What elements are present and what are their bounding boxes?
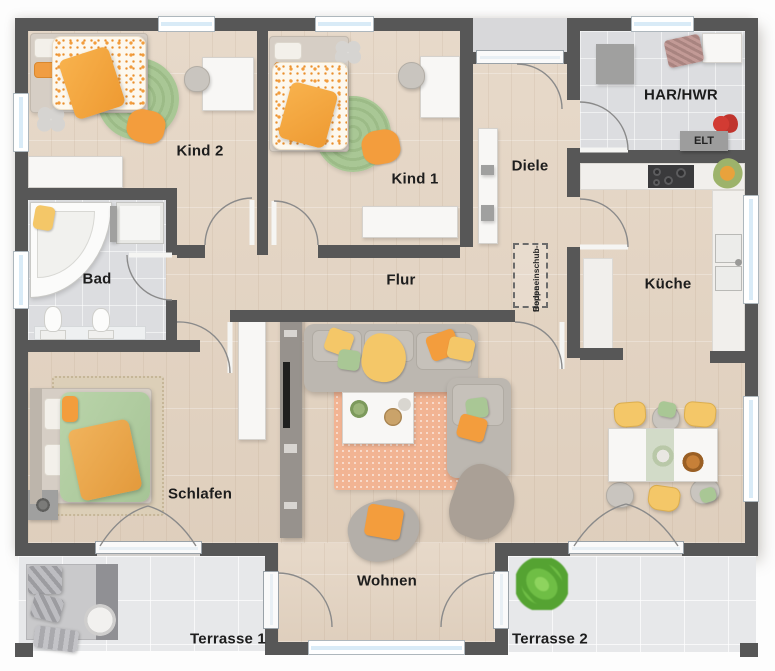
- shelf-item: [284, 444, 297, 453]
- room-label-diele: Diele: [512, 158, 549, 175]
- wall: [567, 247, 580, 358]
- sink: [715, 266, 742, 291]
- bidet: [92, 308, 110, 332]
- room-label-schlafen: Schlafen: [168, 486, 232, 503]
- wall: [508, 543, 570, 556]
- boiler: [596, 44, 634, 84]
- wall: [745, 18, 758, 197]
- desk: [420, 56, 460, 118]
- hall-cabinet: [478, 128, 498, 244]
- window: [315, 16, 374, 32]
- wardrobe: [28, 156, 123, 188]
- tray: [384, 408, 402, 426]
- burner: [676, 168, 686, 178]
- wall: [265, 543, 278, 573]
- wall: [567, 18, 580, 100]
- wardrobe: [238, 318, 266, 440]
- room-label-har-hwr: HAR/HWR: [644, 87, 718, 104]
- entry-door: [476, 50, 564, 64]
- wall: [745, 302, 758, 398]
- wall: [15, 643, 33, 657]
- pillow: [274, 42, 302, 60]
- flower-rug: [334, 40, 362, 64]
- wall: [710, 351, 745, 363]
- wall: [15, 188, 177, 200]
- attic-ladder-box: Bodeneinschub- treppe: [513, 243, 548, 308]
- toilet: [44, 306, 62, 332]
- pillow: [28, 566, 62, 594]
- entry-porch: [473, 18, 567, 52]
- french-door: [568, 541, 684, 554]
- dining-chair: [606, 482, 634, 508]
- wall: [166, 300, 177, 345]
- room-label-bad: Bad: [83, 271, 112, 288]
- wall: [460, 18, 473, 247]
- floor-plan: Bodeneinschub- treppe: [0, 0, 775, 671]
- wardrobe: [362, 206, 458, 238]
- wall: [257, 31, 268, 255]
- desk-chair: [398, 62, 425, 89]
- desk-chair: [184, 66, 210, 92]
- terrace-door: [493, 571, 509, 629]
- window: [308, 640, 465, 655]
- dining-chair: [613, 401, 647, 428]
- window: [13, 93, 29, 152]
- wall: [495, 627, 508, 655]
- wall: [230, 310, 515, 322]
- flowers: [650, 444, 676, 468]
- headboard: [30, 388, 42, 504]
- side-table: [84, 604, 116, 636]
- bowl: [682, 452, 704, 472]
- burner: [653, 168, 661, 176]
- elt-label: ELT: [680, 131, 728, 151]
- wall: [15, 543, 97, 556]
- wall: [567, 163, 580, 197]
- desk: [202, 57, 254, 111]
- wall: [495, 543, 508, 573]
- plant: [713, 158, 745, 192]
- wall: [318, 245, 460, 258]
- plant: [516, 558, 568, 610]
- towel: [32, 204, 56, 231]
- faucet: [735, 259, 742, 266]
- kitchen-counter: [583, 258, 613, 351]
- french-door: [95, 541, 202, 554]
- window: [13, 251, 29, 309]
- wall: [372, 18, 460, 31]
- window: [743, 396, 759, 502]
- tv: [283, 362, 290, 428]
- plant-pot: [35, 497, 51, 513]
- plant: [350, 400, 368, 418]
- pillow: [337, 349, 362, 372]
- wall: [740, 643, 758, 657]
- window: [743, 195, 759, 304]
- burner: [664, 176, 673, 185]
- shower: [116, 202, 164, 244]
- wall: [177, 245, 205, 258]
- dining-chair: [683, 401, 717, 429]
- room-label-terrasse2: Terrasse 2: [512, 631, 588, 648]
- wall: [580, 348, 623, 360]
- wall: [15, 150, 28, 253]
- wall: [166, 200, 177, 255]
- window: [631, 16, 694, 32]
- washing-machine: [702, 33, 742, 63]
- shelf-item: [284, 502, 297, 509]
- room-label-terrasse1: Terrasse 1: [190, 631, 266, 648]
- window: [158, 16, 215, 32]
- room-label-kind2: Kind 2: [176, 143, 223, 160]
- room-label-kind1: Kind 1: [391, 171, 438, 188]
- room-label-kueche: Küche: [645, 276, 692, 293]
- room-label-flur: Flur: [386, 272, 415, 289]
- wall: [15, 18, 160, 31]
- shelf-item: [481, 165, 494, 175]
- wall: [567, 148, 580, 163]
- tray: [398, 398, 411, 411]
- wall: [15, 18, 28, 95]
- shower-panel: [110, 206, 117, 242]
- wall: [213, 18, 317, 31]
- pillow: [62, 396, 78, 422]
- shelf-item: [284, 330, 297, 337]
- wall: [265, 642, 310, 655]
- burner: [653, 179, 660, 186]
- pillow: [363, 503, 404, 541]
- terrace-door: [263, 571, 279, 629]
- room-label-wohnen: Wohnen: [357, 573, 417, 590]
- shelf-item: [481, 205, 494, 221]
- wall: [682, 543, 758, 556]
- wall: [15, 340, 200, 352]
